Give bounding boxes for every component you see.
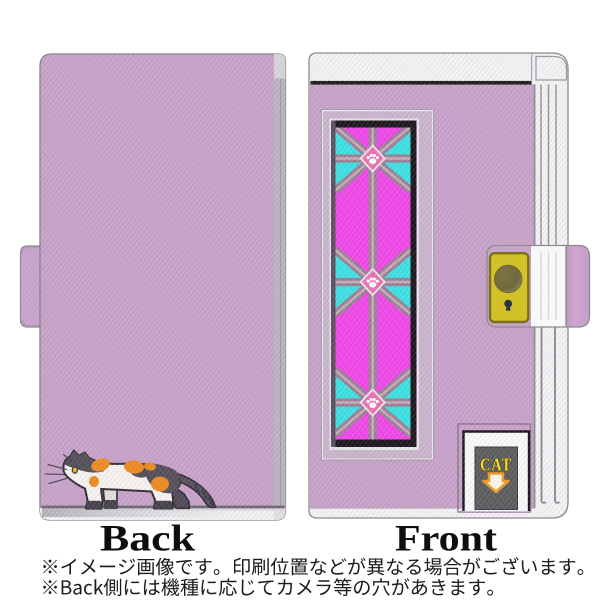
svg-text:Front: Front (395, 518, 498, 559)
svg-text:Back: Back (100, 518, 195, 559)
